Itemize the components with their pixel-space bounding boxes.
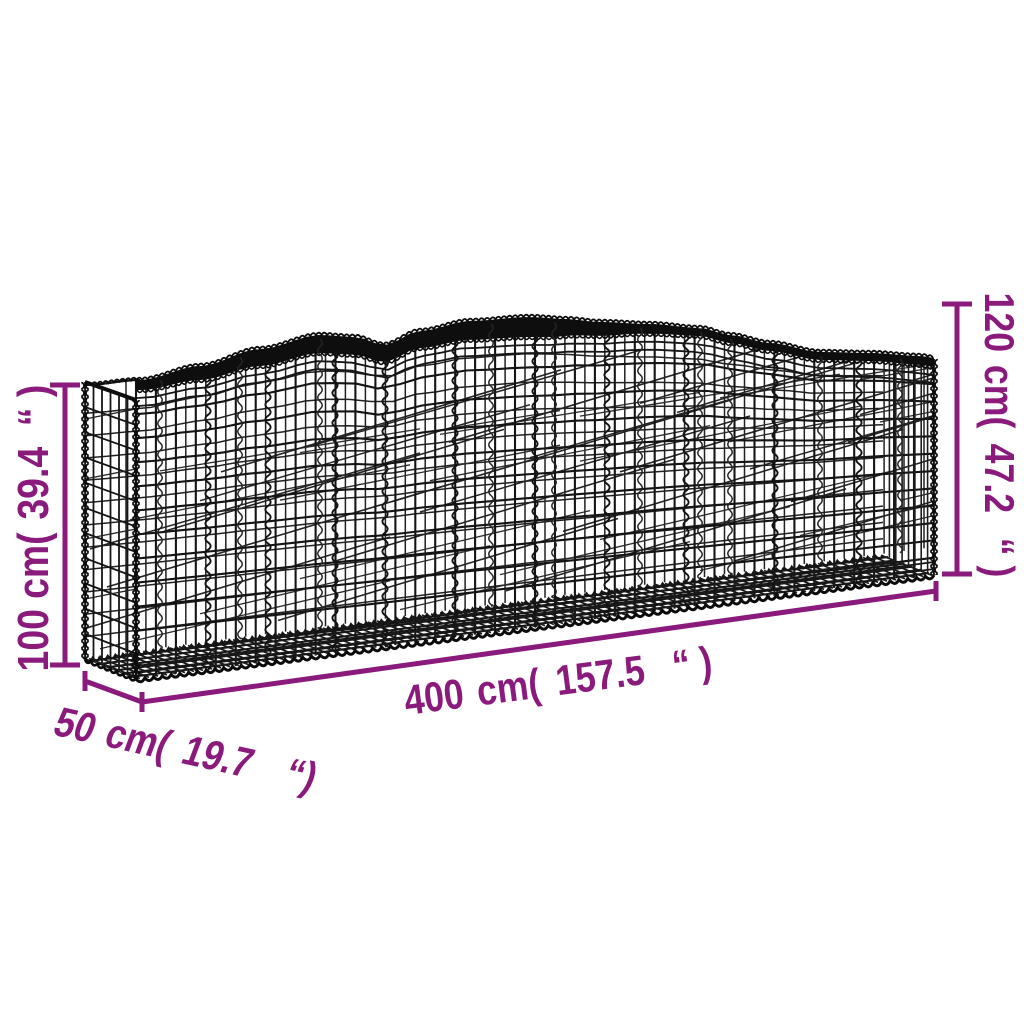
- svg-text:50cm(19.7“): 50cm(19.7“): [48, 700, 324, 801]
- svg-text:100cm(39.4“ ): 100cm(39.4“ ): [8, 385, 58, 672]
- svg-text:120cm(47.2“ ): 120cm(47.2“ ): [975, 293, 1021, 578]
- svg-text:400cm(157.5“ ): 400cm(157.5“ ): [402, 639, 715, 725]
